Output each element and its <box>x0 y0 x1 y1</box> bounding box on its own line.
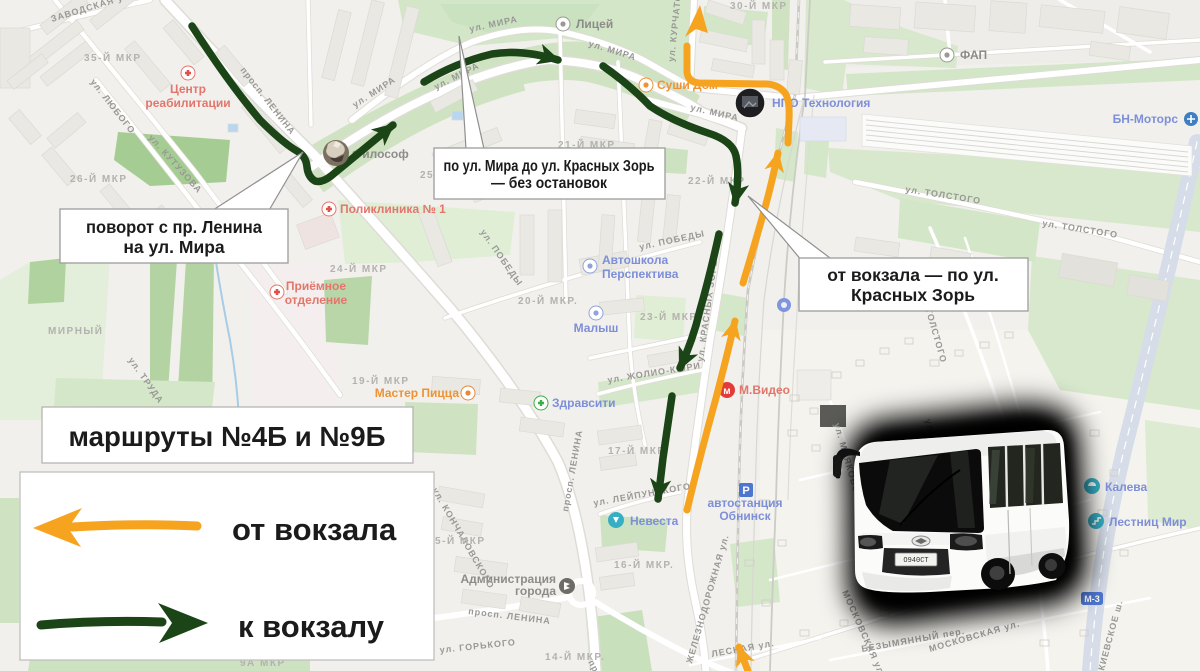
svg-text:Автошкола: Автошкола <box>602 253 668 267</box>
svg-text:отделение: отделение <box>285 293 348 307</box>
svg-text:Малыш: Малыш <box>574 321 619 335</box>
svg-text:Приёмное: Приёмное <box>286 279 346 293</box>
svg-text:24-Й МКР: 24-Й МКР <box>330 262 388 275</box>
svg-text:Обнинск: Обнинск <box>719 509 771 523</box>
svg-text:м: м <box>723 386 730 397</box>
svg-text:М-3: М-3 <box>1084 594 1100 604</box>
svg-text:М.Видео: М.Видео <box>739 383 790 397</box>
svg-text:14-Й МКР.: 14-Й МКР. <box>545 650 605 663</box>
svg-text:О940СТ: О940СТ <box>903 557 928 565</box>
svg-text:16-Й МКР.: 16-Й МКР. <box>614 558 674 571</box>
svg-text:от вокзала: от вокзала <box>232 512 397 547</box>
svg-text:Центр: Центр <box>170 82 206 96</box>
svg-text:по ул. Мира до ул. Красных Зор: по ул. Мира до ул. Красных Зорь <box>444 158 655 175</box>
svg-text:19-Й МКР: 19-Й МКР <box>352 374 410 387</box>
svg-text:35-Й МКР: 35-Й МКР <box>84 51 142 64</box>
svg-text:Мастер Пицца: Мастер Пицца <box>375 386 460 400</box>
svg-text:к вокзалу: к вокзалу <box>238 609 385 644</box>
svg-text:маршруты №4Б и №9Б: маршруты №4Б и №9Б <box>69 421 386 452</box>
svg-text:Калева: Калева <box>1105 480 1148 494</box>
svg-text:20-Й МКР.: 20-Й МКР. <box>518 294 578 307</box>
svg-text:23-Й МКР: 23-Й МКР <box>640 310 698 323</box>
svg-text:Перспектива: Перспектива <box>602 267 679 281</box>
svg-text:Поликлиника № 1: Поликлиника № 1 <box>340 202 446 216</box>
svg-text:поворот с пр. Ленина: поворот с пр. Ленина <box>86 217 262 237</box>
svg-text:17-Й МКР: 17-Й МКР <box>608 444 666 457</box>
svg-text:автостанция: автостанция <box>707 496 782 510</box>
svg-text:на ул. Мира: на ул. Мира <box>123 237 225 257</box>
svg-text:города: города <box>515 584 556 598</box>
svg-text:ФАП: ФАП <box>960 48 987 62</box>
svg-text:15-Й МКР: 15-Й МКР <box>428 534 486 547</box>
svg-text:30-Й МКР: 30-Й МКР <box>730 0 788 12</box>
svg-text:— без остановок: — без остановок <box>491 175 607 192</box>
svg-text:БН-Моторс: БН-Моторс <box>1113 112 1179 126</box>
svg-text:МИРНЫЙ: МИРНЫЙ <box>48 324 103 337</box>
svg-text:Невеста: Невеста <box>630 514 679 528</box>
svg-text:Здравсити: Здравсити <box>552 396 616 410</box>
svg-text:от вокзала — по ул.: от вокзала — по ул. <box>827 265 999 285</box>
svg-text:Красных Зорь: Красных Зорь <box>851 285 975 305</box>
svg-text:Лицей: Лицей <box>576 17 613 31</box>
svg-text:Лестниц Мир: Лестниц Мир <box>1109 515 1187 529</box>
svg-text:26-Й МКР: 26-Й МКР <box>70 172 128 185</box>
svg-text:реабилитации: реабилитации <box>145 96 230 110</box>
